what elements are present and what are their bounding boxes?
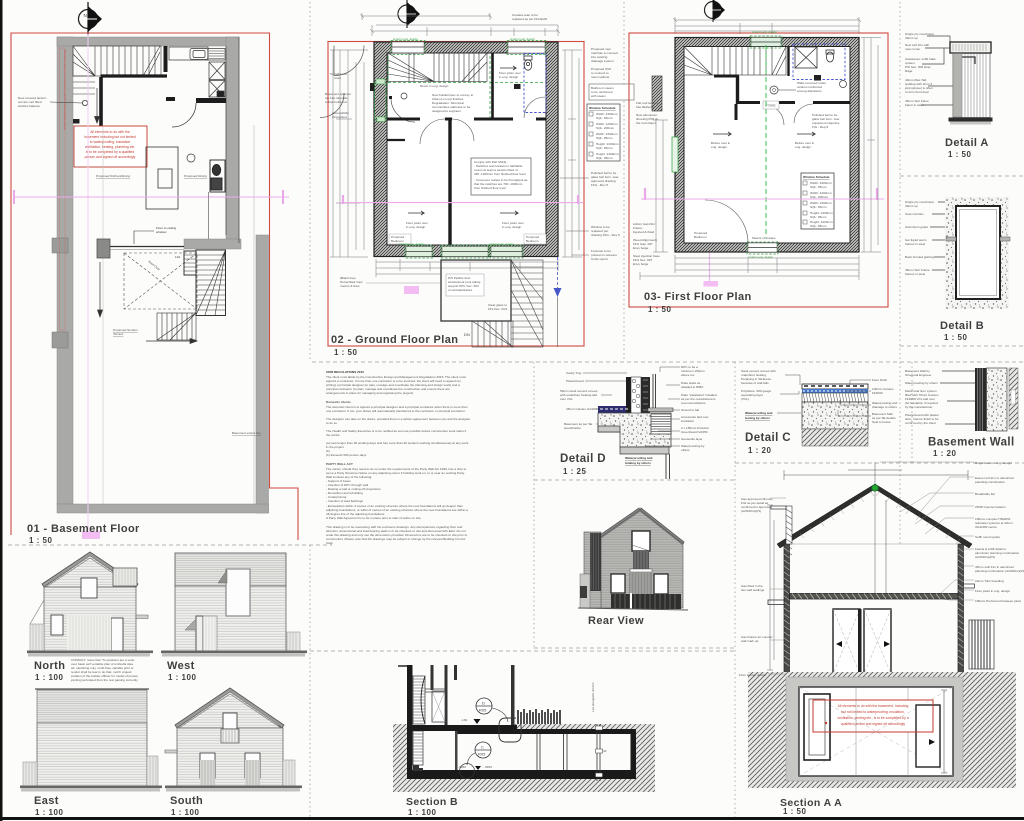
svg-text:1 : 50: 1 : 50 (948, 150, 972, 159)
svg-text:Proposed Kitchen/Dining: Proposed Kitchen/Dining (96, 174, 130, 178)
svg-text:to form front deal: to form front deal (905, 90, 929, 94)
svg-text:FFG - Rev 5: FFG - Rev 5 (591, 183, 608, 187)
svg-text:1 : 50: 1 : 50 (944, 333, 968, 342)
svg-text:designed to engineer: designed to engineer (432, 109, 461, 113)
svg-text:-3280: -3280 (458, 765, 466, 769)
svg-text:because of wall falls: because of wall falls (741, 381, 769, 385)
svg-text:one contractor. If not, your d: one contractor. If not, your duties will… (326, 409, 466, 413)
svg-text:frames in steel: frames in steel (905, 272, 925, 276)
svg-text:Rage: Rage (905, 69, 913, 73)
svg-text:R05: R05 (478, 752, 486, 757)
svg-text:(A2/040m)(P1): (A2/040m)(P1) (975, 555, 995, 559)
svg-text:Lintel in eng. design: Lintel in eng. design (752, 30, 777, 34)
svg-text:Envy beige: Envy beige (633, 246, 649, 250)
svg-text:CoSe report: CoSe report (591, 257, 608, 261)
svg-text:Lintel in eng. design: Lintel in eng. design (399, 242, 424, 246)
svg-text:Plasterboard: Plasterboard (566, 379, 584, 383)
svg-text:(A2/040m)(P1): (A2/040m)(P1) (741, 509, 761, 513)
svg-text:SQL: 95mm: SQL: 95mm (596, 146, 613, 150)
svg-text:Breathable felt: Breathable felt (975, 492, 995, 496)
svg-text:Envy beige: Envy beige (633, 262, 649, 266)
svg-text:-3450: -3450 (484, 765, 492, 769)
svg-text:qualified person and signed of: qualified person and signed off accordin… (841, 722, 906, 726)
svg-text:Bedroom: Bedroom (526, 239, 539, 243)
svg-text:Ridge beam in eng. design: Ridge beam in eng. design (975, 461, 1012, 465)
svg-text:30mm up: 30mm up (905, 204, 918, 208)
svg-text:ventilation, heating, plumbing: ventilation, heating, plumbing etc. (85, 145, 135, 149)
svg-text:-130: -130 (461, 718, 467, 722)
svg-text:Soffit mount gutter: Soffit mount gutter (975, 535, 1000, 539)
svg-text:1 : 100: 1 : 100 (35, 808, 63, 817)
svg-text:eng. design: eng. design (711, 145, 727, 149)
svg-text:testing by others: testing by others (745, 416, 770, 420)
svg-text:Floor finish: Floor finish (872, 378, 887, 382)
svg-text:construction. Please note that: construction. Please note that the drawi… (326, 537, 465, 541)
svg-text:1 : 100: 1 : 100 (171, 808, 199, 817)
svg-text:Screed to fall: Screed to fall (681, 408, 699, 412)
svg-text:A Party Wall Agreement is to b: A Party Wall Agreement is to be in place… (326, 516, 422, 520)
svg-text:panelling combination: panelling combination (975, 480, 1005, 484)
svg-text:R05: R05 (479, 708, 487, 713)
svg-text:All elements to do with the: All elements to do with the (90, 130, 130, 134)
svg-text:Cavity Tray: Cavity Tray (566, 371, 582, 375)
svg-text:1 : 20: 1 : 20 (933, 449, 957, 458)
svg-text:1 : 50: 1 : 50 (334, 348, 358, 357)
svg-text:in eng. design: in eng. design (499, 75, 519, 79)
svg-text:(VCL): (VCL) (741, 397, 749, 401)
svg-text:Waterproofing by others: Waterproofing by others (905, 381, 938, 385)
svg-text:drawing FFG - Rev 5: drawing FFG - Rev 5 (591, 233, 620, 237)
svg-text:Detail B: Detail B (940, 320, 984, 332)
svg-text:North: North (34, 660, 65, 672)
svg-text:SQL: 95mm: SQL: 95mm (596, 136, 613, 140)
svg-text:jointing perforated from the r: jointing perforated from the rest gaming… (70, 678, 138, 682)
svg-text:Lintel in eng. design: Lintel in eng. design (393, 37, 418, 41)
svg-text:FF4000: FF4000 (872, 391, 883, 395)
svg-text:Detail C: Detail C (745, 432, 791, 444)
svg-text:insulation: insulation (681, 419, 694, 423)
svg-text:wall mark up: wall mark up (741, 639, 759, 643)
svg-text:Window Schedule: Window Schedule (589, 106, 616, 110)
svg-text:West: West (167, 660, 195, 672)
svg-text:Basement extent line: Basement extent line (232, 431, 261, 435)
svg-text:(b) Exceeds 500 person days: (b) Exceeds 500 person days (326, 453, 367, 457)
svg-text:South: South (170, 795, 203, 807)
svg-text:1 : 50: 1 : 50 (29, 536, 53, 545)
svg-text:Lintel in eng. design: Lintel in eng. design (748, 255, 773, 259)
svg-text:frames in steel: frames in steel (905, 242, 925, 246)
svg-text:Aluminium gutter: Aluminium gutter (905, 225, 928, 229)
svg-text:02 - Ground Floor Plan: 02 - Ground Floor Plan (331, 334, 458, 346)
svg-text:in eng. design: in eng. design (406, 225, 426, 229)
svg-text:STORE: STORE (765, 104, 776, 108)
svg-text:from finished floor level: from finished floor level (474, 186, 506, 190)
svg-text:SQL: 95mm: SQL: 95mm (810, 215, 827, 219)
svg-text:SQL: 95mm: SQL: 95mm (596, 156, 613, 160)
svg-text:450 -1200mm from finished floo: 450 -1200mm from finished floor level (474, 172, 526, 176)
svg-text:in that bothers/s: in that bothers/s (325, 100, 347, 104)
svg-text:Basement range to be construct: Basement range to be constructed to patt… (63, 50, 67, 130)
svg-text:All elements to do with the ba: All elements to do with the basement, in… (838, 704, 909, 708)
svg-text:The Health and Safety Executiv: The Health and Safety Executive is to be… (326, 429, 466, 433)
svg-text:East: East (34, 795, 59, 807)
svg-text:Lintel in eng. design: Lintel in eng. design (489, 242, 514, 246)
svg-text:basement including but not lim: basement including but not limited (84, 135, 135, 139)
svg-text:Domestic clients: Domestic clients (326, 400, 351, 404)
svg-text:Window Schedule: Window Schedule (803, 175, 830, 179)
svg-text:1 : 50: 1 : 50 (648, 305, 672, 314)
svg-text:others: others (681, 448, 690, 452)
svg-text:tanking by others: tanking by others (625, 461, 651, 465)
svg-text:1 : 25: 1 : 25 (563, 467, 587, 476)
svg-text:- Insertion of lead flashings: - Insertion of lead flashings (326, 499, 363, 503)
svg-text:CDM REGULATIONS 2015: CDM REGULATIONS 2015 (326, 370, 364, 374)
svg-text:Section B: Section B (406, 796, 458, 808)
svg-text:Les alongside sill dim: Les alongside sill dim (591, 682, 595, 712)
svg-text:Detail D: Detail D (560, 453, 606, 465)
svg-text:the roof object: the roof object (636, 121, 656, 125)
svg-text:by the manufacturer: by the manufacturer (905, 405, 933, 409)
svg-text:has flashed in: has flashed in (636, 105, 655, 109)
svg-text:Terrace: Terrace (113, 332, 124, 336)
svg-text:to waterproofing, insulation: to waterproofing, insulation (90, 140, 131, 144)
svg-text:N: N (84, 13, 87, 18)
svg-text:Back bonded glazing: Back bonded glazing (905, 255, 934, 259)
svg-text:throughout: throughout (332, 115, 347, 119)
svg-text:(a) Last longer than 30 workin: (a) Last longer than 30 working days and… (326, 441, 469, 445)
svg-text:Geotextile layer: Geotextile layer (681, 437, 703, 441)
svg-text:Gravi rail tiles: Gravi rail tiles (905, 212, 924, 216)
svg-text:Bedroom: Bedroom (694, 235, 707, 239)
svg-text:Detail A: Detail A (945, 137, 989, 149)
svg-text:room: room (334, 76, 341, 80)
svg-text:on all balustrades: on all balustrades (448, 288, 473, 292)
svg-text:drainage to others: drainage to others (872, 405, 897, 409)
svg-text:recommendations: recommendations (681, 401, 706, 405)
svg-text:1 : 100: 1 : 100 (408, 808, 436, 817)
svg-text:03- First Floor Plan: 03- First Floor Plan (644, 291, 752, 303)
svg-text:confirmed by the client: confirmed by the client (905, 421, 936, 425)
svg-text:above GL: above GL (681, 373, 695, 377)
svg-text:Rear View: Rear View (588, 615, 644, 627)
svg-text:to do so.: to do so. (326, 421, 338, 425)
svg-text:SQL: 200mm: SQL: 200mm (596, 126, 615, 130)
svg-text:Room in eng. design: Room in eng. design (420, 84, 449, 88)
svg-text:Basement Wall: Basement Wall (928, 437, 1015, 449)
svg-text:SQL: 95mm: SQL: 95mm (810, 185, 827, 189)
svg-text:D: D (482, 701, 485, 706)
svg-text:Floor in eng. design: Floor in eng. design (739, 673, 766, 677)
svg-text:SQL: 95mm: SQL: 95mm (810, 224, 827, 228)
svg-text:the works:: the works: (326, 433, 340, 437)
svg-text:specification: specification (564, 426, 581, 430)
svg-text:C: C (481, 745, 484, 750)
svg-text:with steam: with steam (591, 94, 606, 98)
svg-text:L01: L01 (175, 255, 180, 259)
svg-text:1 : 20: 1 : 20 (748, 446, 772, 455)
svg-text:PARTY WALL ACT: PARTY WALL ACT (326, 462, 353, 466)
svg-text:SQL: 200mm: SQL: 200mm (810, 195, 829, 199)
svg-text:detailed to RIBA: detailed to RIBA (681, 385, 704, 389)
svg-text:ventilation, venting etc., is: ventilation, venting etc., is to be comp… (837, 716, 908, 720)
svg-text:window: window (156, 230, 167, 234)
svg-text:22mm T&G boarding: 22mm T&G boarding (975, 579, 1004, 583)
svg-text:Proposed Dining: Proposed Dining (184, 174, 207, 178)
svg-text:FFL Dec. PoS: FFL Dec. PoS (488, 307, 507, 311)
svg-text:30mm up: 30mm up (905, 36, 918, 40)
svg-text:25/38 Counter battens: 25/38 Counter battens (975, 505, 1006, 509)
svg-text:DN: DN (464, 332, 470, 337)
svg-text:SQL: 95mm: SQL: 95mm (596, 116, 613, 120)
svg-text:1 : 100: 1 : 100 (168, 673, 196, 682)
svg-text:planning combination (A2/040m): planning combination (A2/040m)(P1) (975, 569, 1024, 573)
svg-text:FIG - Rep 8: FIG - Rep 8 (812, 125, 828, 129)
svg-text:drainage system: drainage system (591, 59, 614, 63)
svg-text:over VCL: over VCL (560, 397, 573, 401)
svg-text:SQL: 95mm: SQL: 95mm (810, 205, 827, 209)
svg-text:1 : 100: 1 : 100 (35, 673, 63, 682)
svg-text:44: 44 (603, 749, 607, 753)
svg-text:01 - Basement Floor: 01 - Basement Floor (27, 523, 140, 535)
svg-text:Lintel in eng. design: Lintel in eng. design (510, 37, 535, 41)
svg-text:Waterproofing and: Waterproofing and (745, 411, 772, 415)
svg-text:replaced as per FFL/ELW: replaced as per FFL/ELW (512, 17, 547, 21)
svg-text:Means of escape: Means of escape (752, 236, 776, 240)
svg-text:Waterproofing and: Waterproofing and (625, 456, 652, 460)
svg-text:45mm Celotex GA4000: 45mm Celotex GA4000 (566, 407, 598, 411)
svg-text:among alterations: among alterations (797, 89, 822, 93)
svg-text:1 : 50: 1 : 50 (783, 807, 807, 816)
svg-text:Seal to below: Seal to below (872, 420, 891, 424)
svg-text:body.: body. (326, 541, 333, 545)
svg-text:180mm Preformed between joists: 180mm Preformed between joists (975, 599, 1022, 603)
svg-text:two wall sealings: two wall sealings (741, 588, 765, 592)
svg-text:new manhole: new manhole (591, 75, 610, 79)
svg-text:arrangements in place for mana: arrangements in place for managing and o… (326, 391, 414, 395)
svg-text:injected & fitted: injected & fitted (633, 230, 654, 234)
svg-text:window balance: window balance (18, 104, 40, 108)
svg-text:thick/400 centre: thick/400 centre (975, 525, 997, 529)
svg-text:metres & lines: metres & lines (340, 284, 360, 288)
svg-text:new corner: new corner (905, 47, 920, 51)
svg-text:Structural Engineer: Structural Engineer (905, 373, 931, 377)
svg-text:eng. design: eng. design (795, 145, 811, 149)
svg-text:in eng. design: in eng. design (502, 225, 522, 229)
svg-text:Floor joists in eng. design: Floor joists in eng. design (975, 589, 1010, 593)
svg-text:The designer can take on the d: The designer can take on the duties, pro… (326, 417, 470, 421)
svg-text:person and signed off accordin: person and signed off accordingly (85, 155, 136, 159)
svg-text:is to be completed by a qualif: is to be completed by a qualified (86, 150, 135, 154)
svg-text:Greenboard VA350: Greenboard VA350 (681, 430, 708, 434)
svg-text:but not limited to waterproofi: but not limited to waterproofing, insula… (841, 710, 905, 714)
